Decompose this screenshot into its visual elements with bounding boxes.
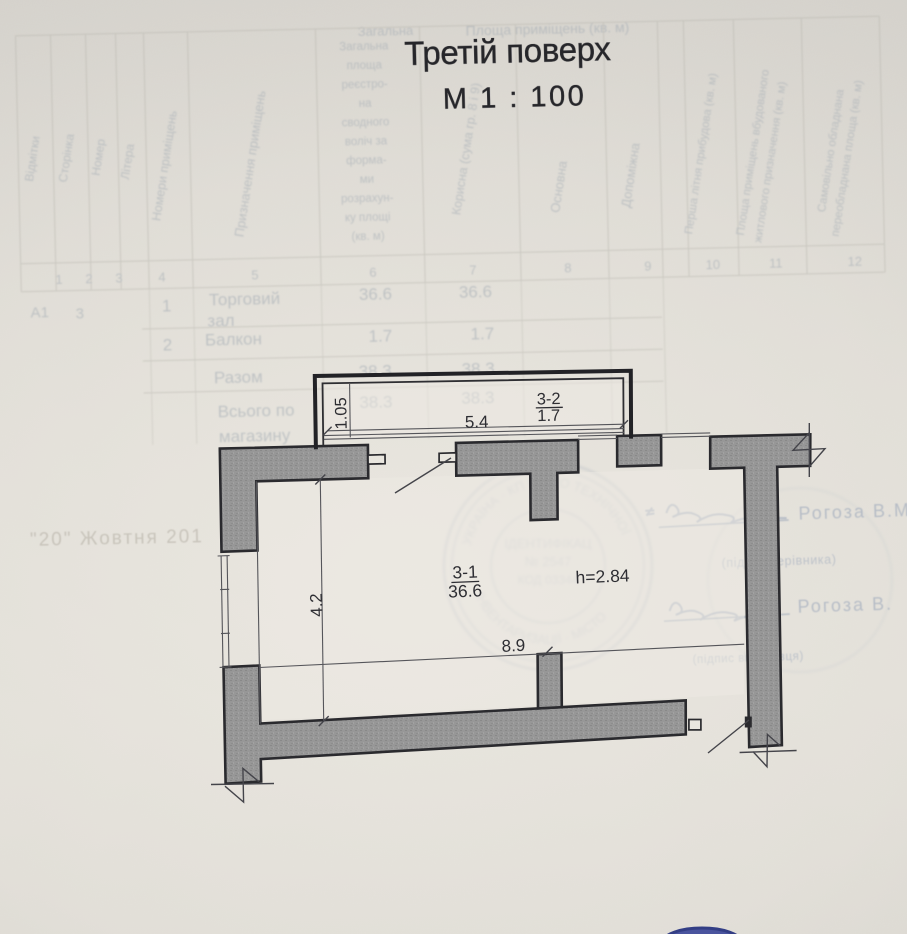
svg-text:реєстро-: реєстро- [341, 78, 388, 91]
svg-text:8: 8 [564, 260, 572, 275]
svg-text:5.4: 5.4 [465, 412, 489, 432]
svg-text:9: 9 [644, 258, 652, 273]
svg-text:5: 5 [251, 267, 259, 282]
svg-text:38.3: 38.3 [461, 359, 495, 379]
svg-text:на: на [359, 98, 373, 110]
svg-text:8.9: 8.9 [501, 636, 526, 656]
svg-text:38.3: 38.3 [358, 361, 392, 381]
svg-text:ми: ми [360, 174, 375, 186]
svg-text:магазину: магазину [219, 426, 291, 447]
svg-text:3-1: 3-1 [452, 562, 478, 583]
svg-text:h=2.84: h=2.84 [575, 565, 630, 587]
svg-text:36.6: 36.6 [459, 282, 493, 302]
svg-text:М 1 : 100: М 1 : 100 [442, 80, 586, 115]
svg-text:12: 12 [847, 254, 862, 269]
svg-text:Третій поверх: Третій поверх [404, 30, 612, 72]
svg-text:(кв. м): (кв. м) [351, 230, 385, 243]
svg-text:Загальна: Загальна [339, 40, 389, 53]
svg-text:1.05: 1.05 [332, 397, 351, 429]
svg-text:36.6: 36.6 [448, 580, 483, 601]
svg-text:2: 2 [85, 271, 93, 286]
svg-text:7: 7 [469, 262, 477, 277]
svg-text:форма-: форма- [346, 154, 387, 167]
svg-text:ку площі: ку площі [345, 211, 391, 224]
svg-text:1: 1 [162, 296, 172, 315]
svg-text:Балкон: Балкон [205, 329, 262, 349]
svg-text:Всього по: Всього по [217, 401, 294, 422]
svg-text:А1: А1 [30, 304, 49, 321]
svg-text:3-2: 3-2 [537, 390, 561, 408]
svg-text:2: 2 [163, 335, 173, 354]
svg-text:4.2: 4.2 [307, 593, 327, 617]
svg-text:зал: зал [207, 311, 235, 331]
svg-text:"20" Жовтня 201: "20" Жовтня 201 [30, 526, 204, 551]
svg-text:1.7: 1.7 [470, 324, 494, 344]
svg-text:1.7: 1.7 [537, 407, 560, 426]
svg-text:36.6: 36.6 [359, 284, 393, 304]
svg-text:10: 10 [705, 257, 720, 272]
svg-text:розрахун-: розрахун- [341, 192, 394, 205]
svg-text:1: 1 [55, 272, 63, 287]
svg-text:3: 3 [75, 305, 84, 322]
svg-text:6: 6 [369, 265, 377, 280]
svg-text:площа: площа [346, 59, 382, 72]
svg-text:1.7: 1.7 [368, 326, 392, 346]
svg-text:Рогоза В.: Рогоза В. [797, 594, 893, 617]
svg-text:Разом: Разом [214, 367, 263, 387]
svg-text:Торговий: Торговий [209, 289, 281, 310]
svg-text:4: 4 [158, 269, 166, 284]
svg-text:сводного: сводного [342, 116, 390, 129]
svg-text:11: 11 [769, 255, 783, 270]
svg-text:воліч за: воліч за [345, 135, 388, 148]
svg-text:Рогоза В.М: Рогоза В.М [798, 500, 907, 524]
svg-text:3: 3 [115, 270, 123, 285]
